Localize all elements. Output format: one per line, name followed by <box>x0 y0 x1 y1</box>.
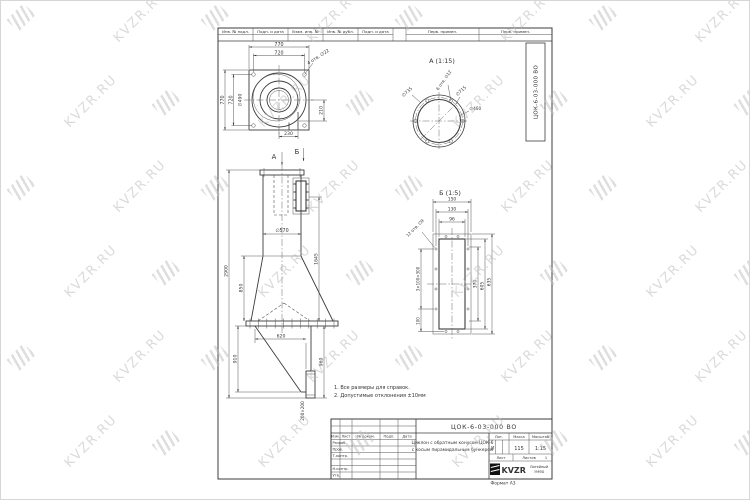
dim-label: 605 <box>480 282 486 291</box>
view-a: А (1:15) ∅735 6 отв. ∅12 ∅715 ∅460 <box>401 57 482 150</box>
stamp-title-line: Циклон с обратным конусом ЦОК-6 <box>412 439 494 446</box>
dim-label: 370 <box>473 280 479 289</box>
section-mark-b: Б <box>295 148 300 156</box>
dim-label: 2900 <box>224 265 230 277</box>
dim-label: 150 <box>448 197 457 203</box>
title-block: ЦОК-6-03-000 ВО Изм. Лист № докум. Подп.… <box>331 419 552 487</box>
stamp-sheets-label: Листов <box>522 456 535 460</box>
dim-label: 210 <box>319 106 325 115</box>
dim-label: 1645 <box>313 253 319 265</box>
doc-number-vertical: ЦОК-6-03-000 ВО <box>534 65 540 119</box>
dim-label: ∅735 <box>401 86 414 99</box>
dim-label: 770 <box>274 42 283 48</box>
strip-cell-label: Подп. и дата <box>362 29 389 34</box>
stamp-col-header: Изм. <box>331 435 339 439</box>
stamp-title-line: с косым пирамидальным бункером <box>412 446 494 453</box>
section-mark-a: А <box>272 153 277 161</box>
stamp-sheets-value: 1 <box>545 456 547 460</box>
dim-label: 720 <box>274 50 283 56</box>
view-a-title: А (1:15) <box>429 57 455 65</box>
stamp-col-header: Подп. <box>384 435 395 439</box>
dim-label: 100 <box>415 317 420 325</box>
dim-label: 960 <box>319 358 325 367</box>
kvzr-logo-icon <box>490 464 500 476</box>
holes-callout: 6 отв. ∅12 <box>435 69 453 91</box>
stamp-mass-header: Масса <box>513 435 524 439</box>
dim-label: 96 <box>449 217 455 223</box>
holes-callout: 12 отв. ∅9 <box>405 218 425 238</box>
stamp-scale-header: Масштаб <box>532 435 550 439</box>
stamp-lit-header: Лит. <box>495 435 503 439</box>
stamp-scale-value: 1:15 <box>535 446 546 452</box>
dim-label: 720 <box>228 95 234 104</box>
note-line: 2. Допустимые отклонения ±10мм <box>334 393 426 399</box>
strip-cell-label: Перв. примен. <box>501 29 530 34</box>
section-arrows: А Б <box>272 148 304 165</box>
technical-drawing: Инв. № подл. Подп. и дата Взам. инв. № И… <box>1 1 750 500</box>
dim-label: ∅570 <box>275 228 288 234</box>
kvzr-logo-text: KVZR <box>502 466 526 475</box>
note-line: 1. Все размеры для справок. <box>334 385 410 391</box>
dim-label: 635 <box>487 278 493 287</box>
stamp-row-label: Н.контр. <box>333 467 349 471</box>
dim-label: 3×100=300 <box>415 266 420 291</box>
dim-label: ∅460 <box>470 106 482 111</box>
stamp-designation: ЦОК-6-03-000 ВО <box>451 424 517 431</box>
strip-cell-label: Инв. № дубл. <box>327 29 354 34</box>
factory-name-line: завод <box>534 470 545 474</box>
strip-cell-label: Перв. примен. <box>428 29 457 34</box>
plan-view: 770 720 770 720 ∅490 210 230 4 отв. ∅22 <box>220 42 331 139</box>
stamp-col-header: Лист <box>341 435 350 439</box>
dim-label: 770 <box>220 95 226 104</box>
strip-cell-label: Взам. инв. № <box>292 29 318 34</box>
front-view: ∅570 200×200 620 910 960 <box>224 164 339 421</box>
dim-label: 850 <box>239 284 245 293</box>
dim-label: 200×200 <box>300 401 305 421</box>
stamp-col-header: № докум. <box>357 435 375 439</box>
dim-label: 230 <box>284 131 293 137</box>
stamp-row-label: Утв. <box>333 474 341 478</box>
drawing-scan-page: Инв. № подл. Подп. и дата Взам. инв. № И… <box>0 0 750 500</box>
dim-label: ∅490 <box>238 94 244 107</box>
stamp-mass-value: 115 <box>514 446 524 452</box>
stamp-lit-value: И <box>491 446 494 452</box>
notes: 1. Все размеры для справок. 2. Допустимы… <box>334 385 426 399</box>
strip-cell-label: Инв. № подл. <box>222 29 249 34</box>
dim-label: 130 <box>448 207 457 213</box>
factory-name-line: Литейный <box>530 465 548 469</box>
stamp-row-label: Т.контр. <box>332 454 349 458</box>
top-strip: Инв. № подл. Подп. и дата Взам. инв. № И… <box>218 28 552 41</box>
view-b-title: Б (1:5) <box>439 189 461 197</box>
holes-callout: 4 отв. ∅22 <box>306 48 331 67</box>
stamp-row-label: Разраб. <box>333 441 347 445</box>
stamp-row-label: Пров. <box>333 448 343 452</box>
dim-label: 620 <box>277 333 286 339</box>
stamp-sheet-label: Лист <box>496 456 505 460</box>
strip-cell-label: Подп. и дата <box>257 29 284 34</box>
dim-label: ∅715 <box>455 85 468 98</box>
stamp-col-header: Дата <box>402 435 411 439</box>
doc-number-box: ЦОК-6-03-000 ВО <box>526 43 545 141</box>
view-b: Б (1:5) 150 130 96 12 отв. ∅9 3×100=300 … <box>405 189 495 340</box>
format-label: Формат А3 <box>490 481 515 487</box>
dim-label: 910 <box>233 355 239 364</box>
